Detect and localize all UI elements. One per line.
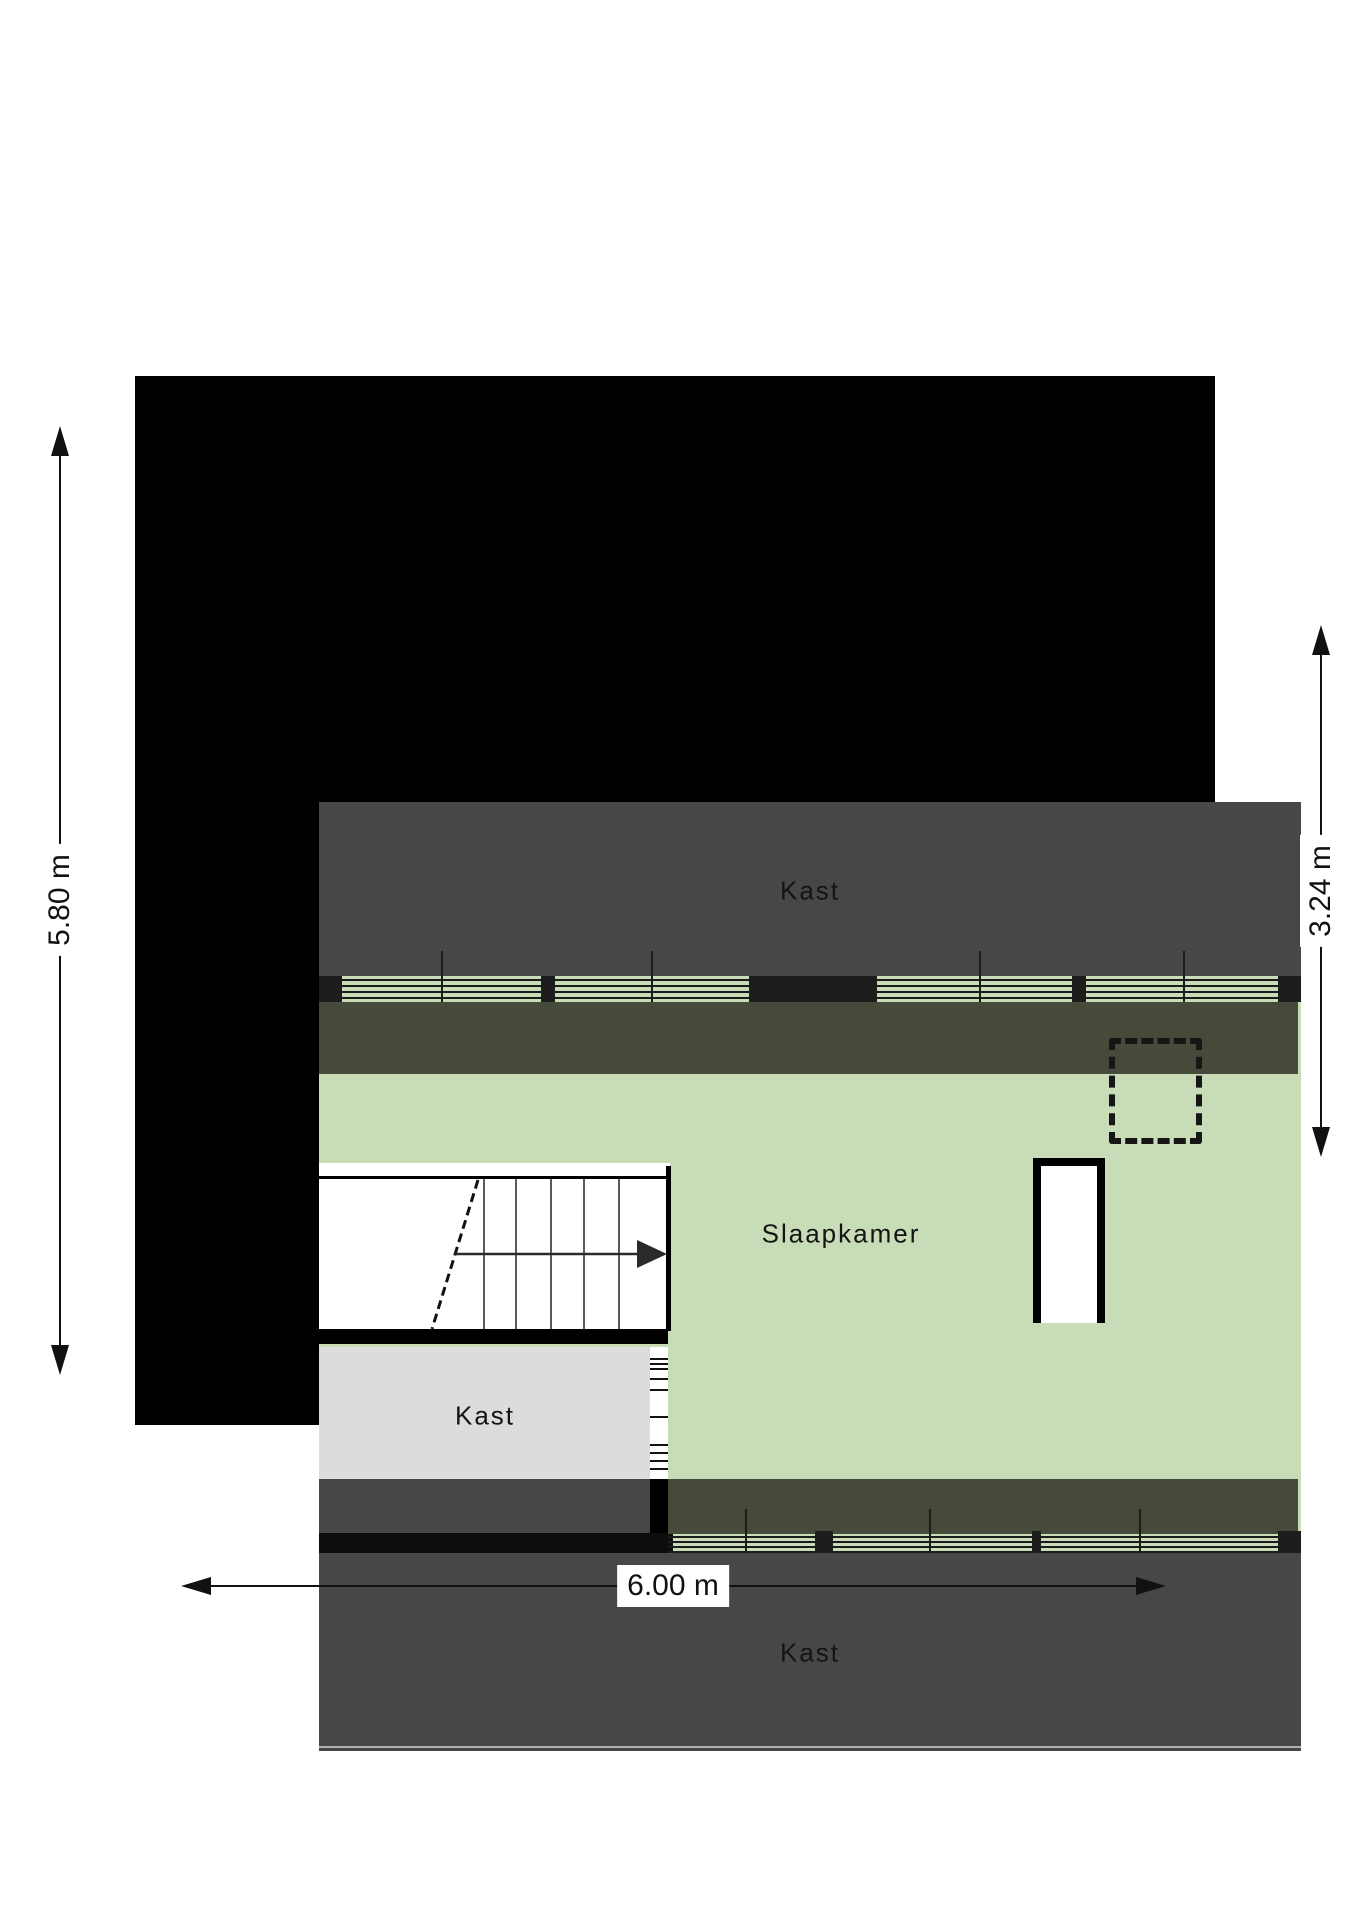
door-strip-line bbox=[650, 1368, 668, 1370]
room-label-kast-bottom: Kast bbox=[780, 1638, 840, 1669]
door-strip-line bbox=[650, 1363, 668, 1365]
room-label-kast-top: Kast bbox=[780, 876, 840, 907]
rail-line bbox=[668, 1541, 1301, 1543]
floorplan-page: Kast Slaapkamer Kast Kast 5.80 m 3.24 m … bbox=[0, 0, 1358, 1920]
door-strip-line bbox=[650, 1416, 668, 1418]
dimension-label-right: 3.24 m bbox=[1300, 835, 1342, 947]
stair-tread bbox=[618, 1179, 620, 1329]
stair-bottom-wall bbox=[319, 1329, 668, 1344]
low-roof-band-bottom bbox=[668, 1479, 1298, 1534]
rail-post-wide bbox=[749, 976, 877, 1002]
door-strip-line bbox=[650, 1452, 668, 1454]
door-strip-line bbox=[650, 1460, 668, 1462]
room-slaapkamer: Kast Slaapkamer Kast Kast bbox=[319, 802, 1301, 1751]
room-label-slaapkamer: Slaapkamer bbox=[762, 1219, 921, 1250]
rail-line bbox=[668, 1546, 1301, 1548]
closet-door-strip bbox=[650, 1347, 668, 1479]
rail-post bbox=[1072, 976, 1086, 1002]
stair-tread bbox=[583, 1179, 585, 1329]
rail-post bbox=[319, 976, 342, 1002]
arrow-left-icon bbox=[181, 1577, 211, 1595]
door-strip-line bbox=[650, 1358, 668, 1360]
room-label-kast-middle: Kast bbox=[455, 1401, 515, 1432]
door-strip-line bbox=[650, 1378, 668, 1380]
door-strip-line bbox=[650, 1444, 668, 1446]
dimension-label-bottom: 6.00 m bbox=[617, 1565, 729, 1607]
stair-treads-area bbox=[319, 1179, 666, 1329]
floor-edge-line bbox=[319, 1746, 1301, 1748]
arrow-up-icon bbox=[1312, 625, 1330, 655]
arrow-down-icon bbox=[51, 1345, 69, 1375]
stair-tread bbox=[550, 1179, 552, 1329]
door-strip-line bbox=[650, 1389, 668, 1391]
rail-post bbox=[1278, 976, 1301, 1002]
chimney-niche-left-wall bbox=[1033, 1158, 1041, 1323]
stair-tread bbox=[483, 1179, 485, 1329]
arrow-up-icon bbox=[51, 426, 69, 456]
stair-tread bbox=[515, 1179, 517, 1329]
rail-line bbox=[668, 1536, 1301, 1538]
outer-wall: Kast Slaapkamer Kast Kast bbox=[135, 376, 1215, 1425]
chimney-niche-right-wall bbox=[1097, 1158, 1105, 1323]
stair-right-wall bbox=[666, 1166, 671, 1331]
arrow-right-icon bbox=[1136, 1577, 1166, 1595]
arrow-down-icon bbox=[1312, 1127, 1330, 1157]
dimension-label-left: 5.80 m bbox=[39, 844, 81, 956]
chimney-niche-inner bbox=[1041, 1166, 1097, 1323]
chimney-niche-top-wall bbox=[1033, 1158, 1105, 1166]
stair-landing-strip bbox=[319, 1163, 670, 1176]
rail-post bbox=[541, 976, 555, 1002]
roof-window-dashed bbox=[1109, 1038, 1202, 1144]
door-strip-line bbox=[650, 1468, 668, 1470]
